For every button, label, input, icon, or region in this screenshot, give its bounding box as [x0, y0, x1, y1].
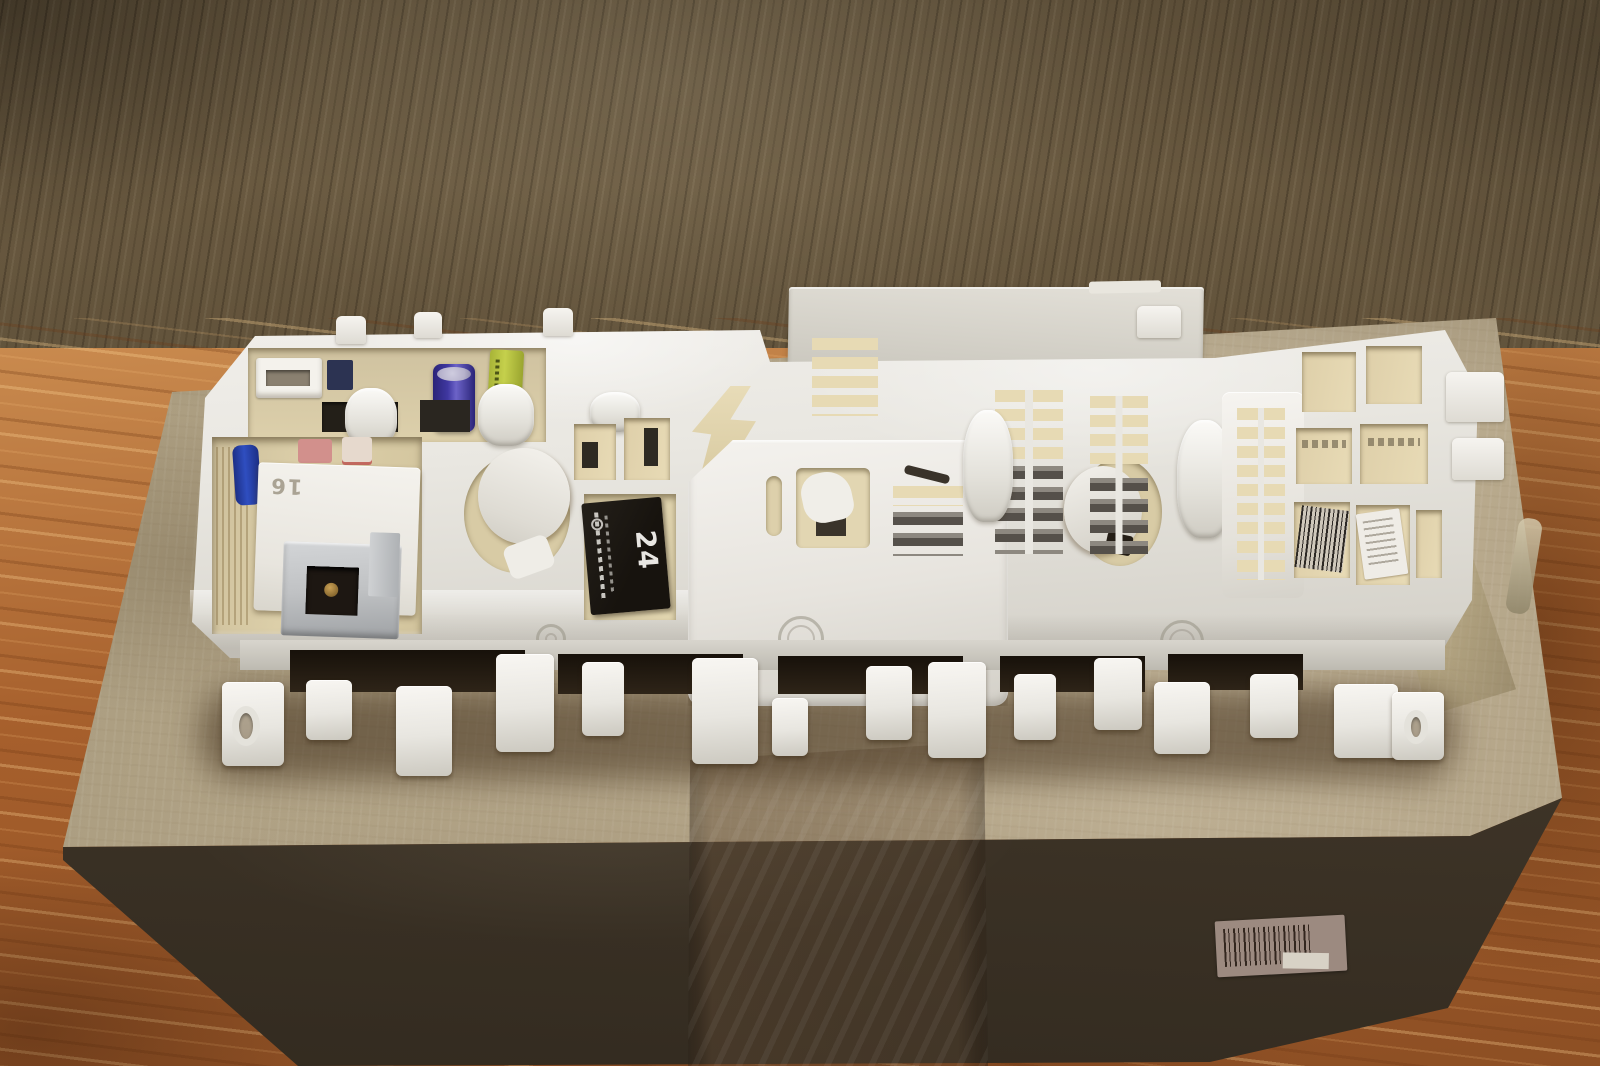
- photo-scene: 16: [0, 0, 1600, 1066]
- capacitor-top: [437, 367, 471, 381]
- component-glimpse: [644, 428, 658, 466]
- housing-tab-right: [1446, 372, 1504, 422]
- pink-component: [298, 439, 332, 463]
- dark-window: [420, 400, 470, 432]
- housing-tab: [1137, 306, 1181, 338]
- lid-fold-tab: [1089, 280, 1161, 293]
- snap-clip: [478, 384, 534, 446]
- mounting-foot: [928, 662, 986, 758]
- white-label: [1356, 508, 1409, 579]
- vent-slot-divider: [1237, 408, 1285, 580]
- housing-window: [1302, 352, 1356, 412]
- fan-cutout-left-disc: [478, 448, 570, 544]
- mounting-foot: [772, 698, 808, 756]
- barcode-through-window: [1294, 505, 1349, 572]
- housing-tab-right: [1452, 438, 1504, 480]
- snap-clip: [963, 410, 1013, 522]
- vent-slots: [893, 512, 963, 556]
- transformer-block: 16: [253, 462, 420, 616]
- mounting-ear: [222, 682, 284, 766]
- ear-hole: [232, 706, 260, 746]
- mounting-foot: [1094, 658, 1142, 730]
- metal-bracket: [281, 541, 402, 639]
- vent-slots: [893, 486, 963, 506]
- connector-slot: [266, 370, 310, 386]
- mounting-foot: [692, 658, 758, 764]
- housing-tab: [543, 308, 573, 336]
- component-glimpse: [582, 442, 598, 468]
- pink-white-component: [342, 437, 372, 465]
- label-writing: [1363, 517, 1399, 569]
- relay-window: 24: [584, 494, 676, 620]
- mounting-foot: [396, 686, 452, 776]
- hook-window: [796, 468, 870, 548]
- housing-window: [574, 424, 616, 480]
- vent-slot-divider: [1090, 396, 1148, 554]
- housing-tab: [336, 316, 366, 344]
- housing-tab: [414, 312, 442, 338]
- relay-value-label: 24: [620, 529, 664, 576]
- mounting-foot: [1334, 684, 1398, 758]
- control-board: 16: [0, 0, 1600, 1066]
- mounting-foot: [1154, 682, 1210, 754]
- barcode-window: [1294, 502, 1350, 578]
- mounting-foot: [1250, 674, 1298, 738]
- angled-slit: [904, 465, 951, 485]
- pill-slot: [766, 476, 782, 536]
- housing-window: [1360, 424, 1428, 484]
- block-label: 16: [265, 472, 306, 499]
- relay: 24: [581, 497, 670, 616]
- housing-window: [1416, 510, 1442, 578]
- mounting-ear: [1392, 692, 1444, 760]
- housing-window: [1296, 428, 1352, 484]
- mounting-foot: [582, 662, 624, 736]
- mounting-foot: [1014, 674, 1056, 740]
- component-window-left: 16: [212, 437, 422, 634]
- housing-window: [1356, 505, 1410, 585]
- pcb-printed-text: [1368, 438, 1420, 446]
- ear-hole: [1404, 710, 1428, 744]
- pcb-printed-text: [1302, 440, 1346, 448]
- navy-component: [327, 360, 353, 390]
- certification-mark-icon: [591, 518, 604, 531]
- mounting-foot: [496, 654, 554, 752]
- wire-connector: [256, 358, 322, 398]
- mounting-foot: [306, 680, 352, 740]
- housing-window: [624, 418, 670, 480]
- housing-window: [1366, 346, 1422, 404]
- bracket-wing: [368, 532, 400, 597]
- vent-slots: [812, 338, 878, 416]
- relay-fine-print: [604, 515, 614, 593]
- mounting-foot: [866, 666, 912, 740]
- hook-clip: [797, 467, 856, 526]
